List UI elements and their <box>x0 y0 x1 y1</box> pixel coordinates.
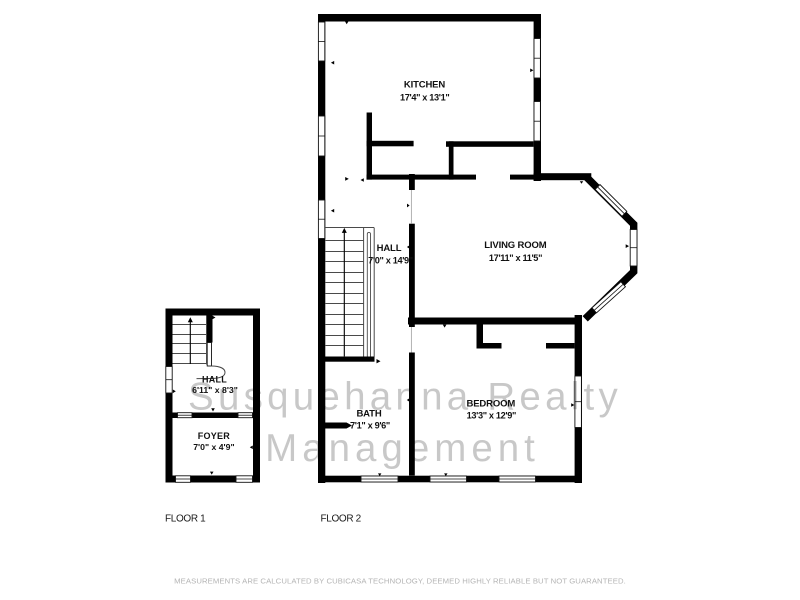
svg-text:LIVING ROOM: LIVING ROOM <box>484 240 546 251</box>
svg-text:FOYER: FOYER <box>198 431 231 441</box>
svg-text:MEASUREMENTS ARE CALCULATED BY: MEASUREMENTS ARE CALCULATED BY CUBICASA … <box>174 577 626 586</box>
svg-text:FLOOR 2: FLOOR 2 <box>321 514 362 525</box>
svg-text:Susquehanna Realty: Susquehanna Realty <box>188 376 622 419</box>
svg-text:Management: Management <box>265 427 540 470</box>
svg-text:17'11" x 11'5": 17'11" x 11'5" <box>489 253 542 263</box>
svg-text:17'4" x 13'1": 17'4" x 13'1" <box>400 93 449 103</box>
svg-text:FLOOR 1: FLOOR 1 <box>165 514 206 525</box>
svg-text:7'0" x 14'9": 7'0" x 14'9" <box>368 256 413 266</box>
svg-text:7'0" x 4'9": 7'0" x 4'9" <box>193 442 234 452</box>
svg-text:KITCHEN: KITCHEN <box>404 80 445 91</box>
svg-text:HALL: HALL <box>377 243 402 254</box>
